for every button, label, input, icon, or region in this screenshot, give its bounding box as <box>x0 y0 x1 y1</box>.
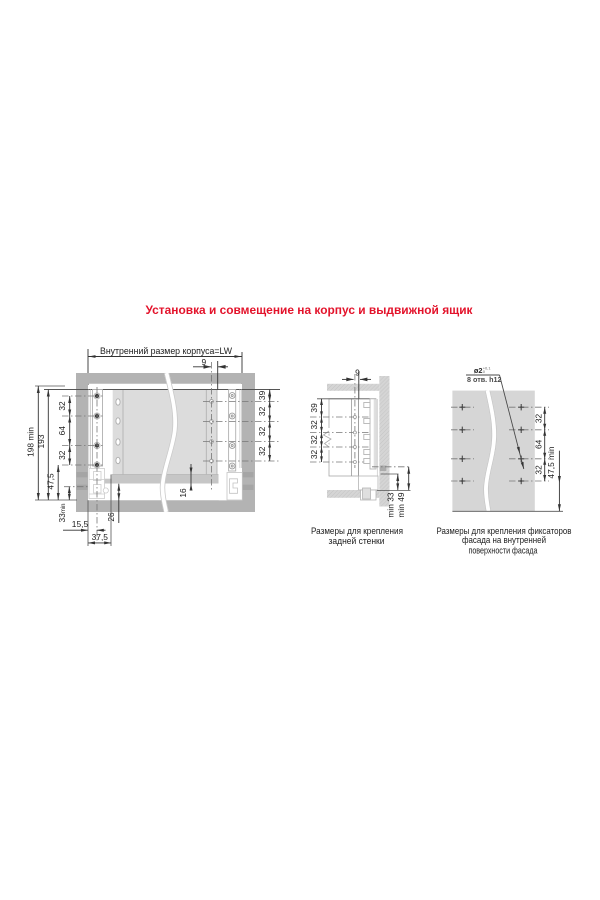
svg-text:9: 9 <box>202 357 207 367</box>
svg-text:32: 32 <box>309 450 319 460</box>
svg-text:Внутренний размер корпуса=LW: Внутренний размер корпуса=LW <box>100 346 232 356</box>
svg-text:39: 39 <box>309 403 319 413</box>
svg-text:32: 32 <box>257 446 267 456</box>
svg-text:32: 32 <box>57 450 67 460</box>
svg-text:37,5: 37,5 <box>92 532 109 542</box>
svg-text:32: 32 <box>257 406 267 416</box>
svg-text:32: 32 <box>533 414 543 424</box>
svg-text:193: 193 <box>36 434 46 448</box>
svg-text:33min: 33min <box>57 504 67 523</box>
svg-text:ø2: ø2 <box>474 366 483 375</box>
svg-text:9: 9 <box>355 367 360 377</box>
svg-text:поверхности фасада: поверхности фасада <box>469 545 539 555</box>
svg-text:198 min: 198 min <box>26 427 36 457</box>
svg-text:39: 39 <box>257 390 267 400</box>
svg-text:Размеры для крепления: Размеры для крепления <box>311 526 403 536</box>
svg-text:фасада на внутренней: фасада на внутренней <box>462 535 546 545</box>
svg-text:32: 32 <box>309 420 319 430</box>
svg-text:47,5 min: 47,5 min <box>546 446 556 478</box>
svg-text:15,5: 15,5 <box>72 519 89 529</box>
svg-text:32: 32 <box>57 401 67 411</box>
svg-text:задней стенки: задней стенки <box>329 536 385 546</box>
svg-text:32: 32 <box>257 426 267 436</box>
svg-text:64: 64 <box>533 439 543 449</box>
svg-text:Установка и совмещение на корп: Установка и совмещение на корпус и выдви… <box>146 303 474 317</box>
svg-text:32: 32 <box>309 435 319 445</box>
svg-text:min 33: min 33 <box>385 492 395 517</box>
svg-text:8 отв. h12: 8 отв. h12 <box>467 375 502 384</box>
svg-text:32: 32 <box>533 465 543 475</box>
svg-text:16: 16 <box>178 488 188 498</box>
svg-text:47,5: 47,5 <box>46 473 56 490</box>
svg-text:min 49: min 49 <box>396 492 406 517</box>
svg-text:64: 64 <box>57 426 67 436</box>
